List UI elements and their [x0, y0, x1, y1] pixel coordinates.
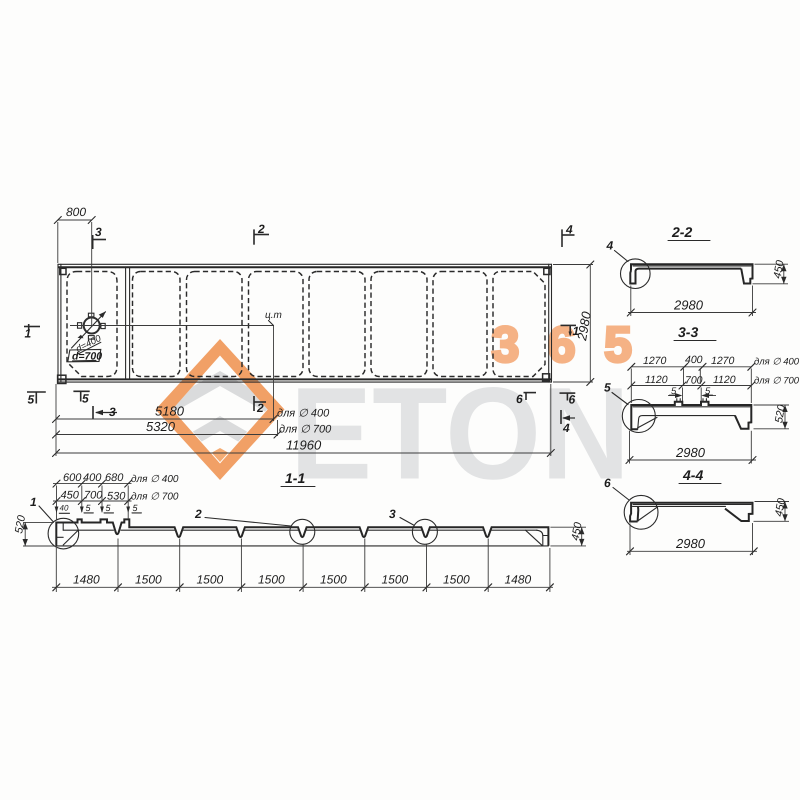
svg-text:для ∅ 700: для ∅ 700 — [131, 492, 179, 503]
svg-text:5320: 5320 — [146, 419, 176, 434]
svg-text:2: 2 — [257, 222, 265, 236]
svg-text:4-4: 4-4 — [682, 467, 703, 483]
svg-text:4: 4 — [565, 223, 573, 237]
svg-text:5: 5 — [133, 503, 139, 513]
svg-text:5: 5 — [86, 503, 92, 513]
svg-text:1500: 1500 — [320, 573, 347, 587]
svg-text:1-1: 1-1 — [285, 470, 305, 486]
svg-text:5: 5 — [82, 392, 89, 406]
svg-text:600: 600 — [63, 472, 82, 484]
svg-text:ц.т: ц.т — [265, 310, 282, 321]
svg-text:2-2: 2-2 — [671, 224, 692, 240]
svg-text:1270: 1270 — [711, 355, 735, 367]
svg-text:1120: 1120 — [645, 374, 668, 386]
svg-text:4: 4 — [606, 239, 614, 253]
svg-text:530: 530 — [107, 491, 126, 503]
svg-text:5: 5 — [604, 381, 611, 395]
svg-text:2: 2 — [194, 507, 202, 521]
svg-text:40: 40 — [60, 504, 69, 513]
svg-text:2: 2 — [256, 401, 264, 415]
svg-text:1500: 1500 — [135, 573, 162, 587]
svg-text:1500: 1500 — [443, 573, 470, 587]
svg-text:1480: 1480 — [73, 573, 100, 587]
svg-text:450: 450 — [570, 520, 585, 541]
svg-text:800: 800 — [66, 205, 86, 219]
svg-text:1500: 1500 — [197, 573, 224, 587]
svg-text:400: 400 — [83, 472, 102, 484]
svg-text:1480: 1480 — [505, 573, 532, 587]
svg-text:для ∅ 700: для ∅ 700 — [279, 424, 332, 436]
svg-text:6: 6 — [604, 476, 611, 490]
svg-text:1120: 1120 — [713, 374, 736, 386]
svg-text:700: 700 — [84, 490, 103, 502]
svg-text:11960: 11960 — [286, 438, 322, 453]
svg-text:3-3: 3-3 — [678, 324, 698, 340]
svg-text:520: 520 — [773, 403, 788, 424]
svg-text:1270: 1270 — [643, 355, 667, 367]
svg-text:для ∅ 400: для ∅ 400 — [131, 474, 179, 485]
svg-text:2980: 2980 — [675, 445, 706, 460]
svg-text:3: 3 — [95, 225, 102, 239]
svg-text:680: 680 — [105, 472, 124, 484]
svg-text:3: 3 — [389, 507, 396, 521]
svg-text:1500: 1500 — [382, 573, 409, 587]
svg-text:для ∅ 400: для ∅ 400 — [754, 357, 800, 368]
svg-text:450: 450 — [61, 490, 80, 502]
svg-text:3: 3 — [109, 405, 116, 419]
svg-text:2980: 2980 — [673, 298, 704, 313]
svg-text:1: 1 — [25, 327, 32, 341]
svg-text:1: 1 — [30, 495, 37, 509]
svg-text:1500: 1500 — [258, 573, 285, 587]
svg-text:для ∅ 700: для ∅ 700 — [754, 376, 800, 387]
svg-text:520: 520 — [13, 513, 28, 534]
svg-text:4: 4 — [562, 421, 570, 435]
svg-text:5: 5 — [106, 503, 112, 513]
svg-text:для ∅ 400: для ∅ 400 — [277, 408, 330, 420]
svg-text:2980: 2980 — [675, 536, 706, 551]
svg-text:400: 400 — [685, 354, 703, 366]
svg-text:5180: 5180 — [155, 404, 185, 419]
svg-text:450: 450 — [772, 258, 787, 279]
svg-text:6: 6 — [516, 392, 523, 406]
svg-text:5: 5 — [28, 393, 35, 407]
svg-text:6: 6 — [569, 393, 576, 407]
